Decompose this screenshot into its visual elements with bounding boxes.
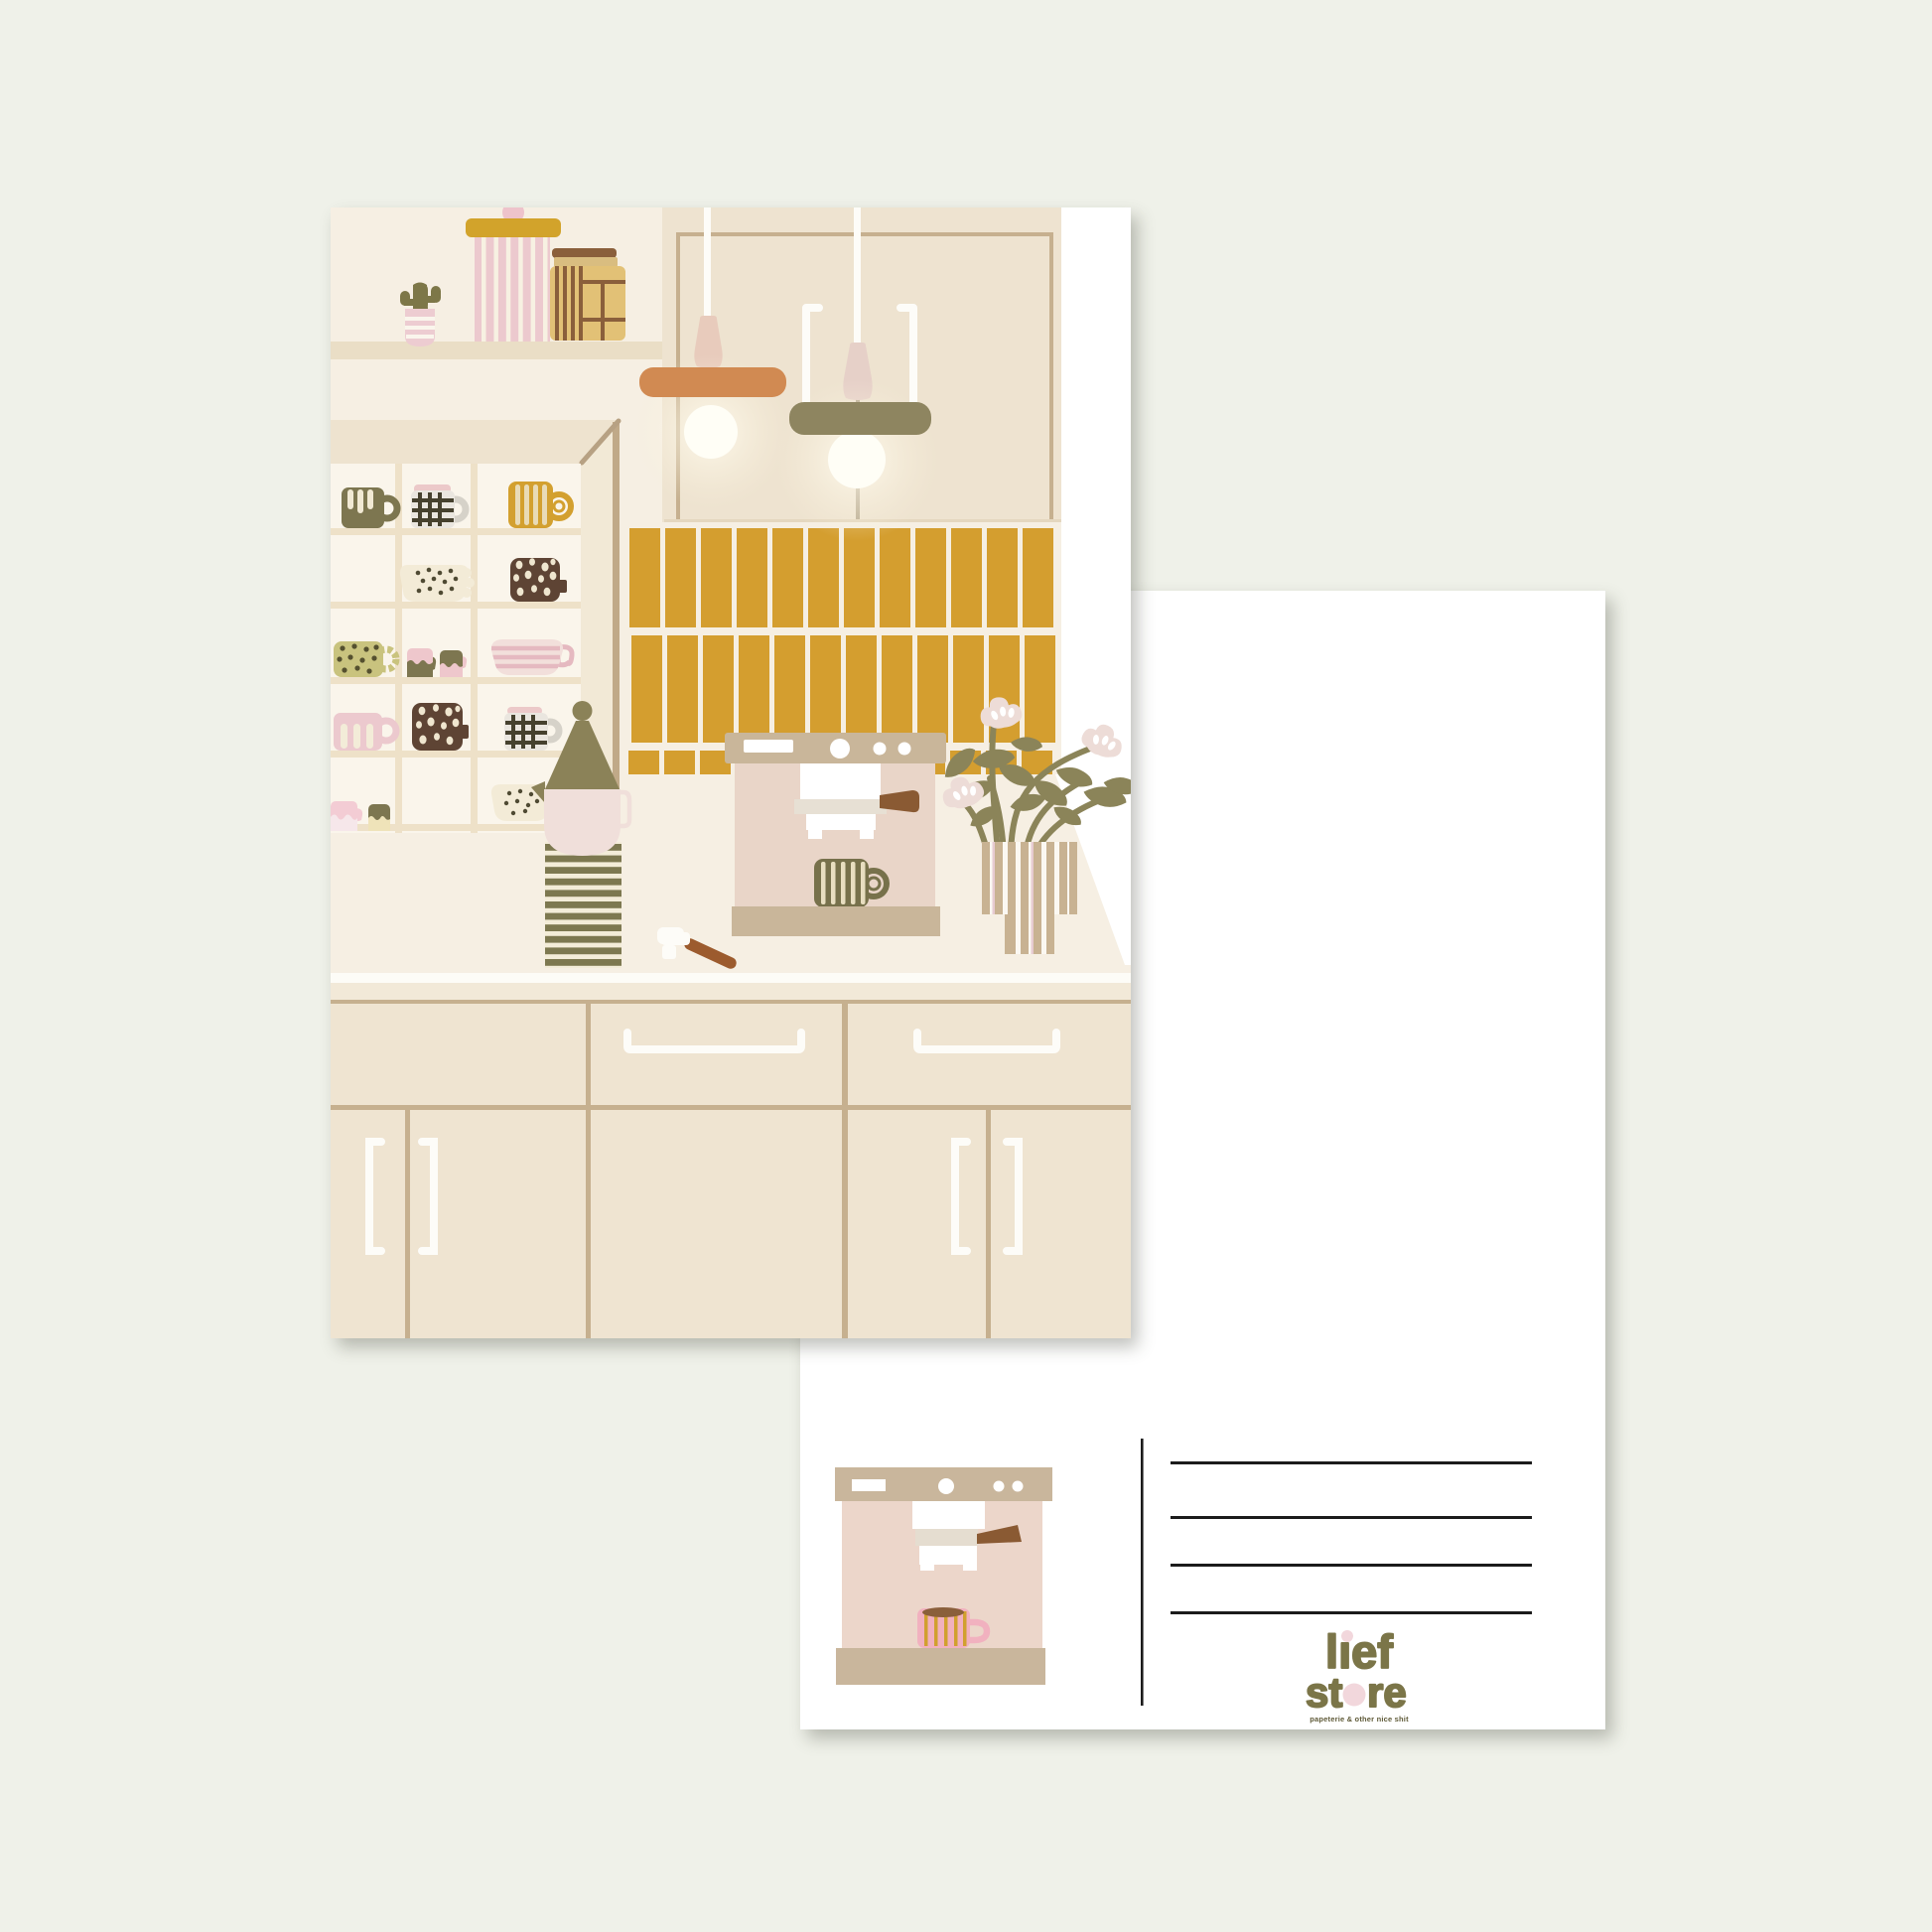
svg-text:re: re — [1367, 1669, 1407, 1716]
svg-text:papeterie & other nice shit: papeterie & other nice shit — [1310, 1715, 1409, 1724]
svg-text:st: st — [1306, 1669, 1342, 1716]
